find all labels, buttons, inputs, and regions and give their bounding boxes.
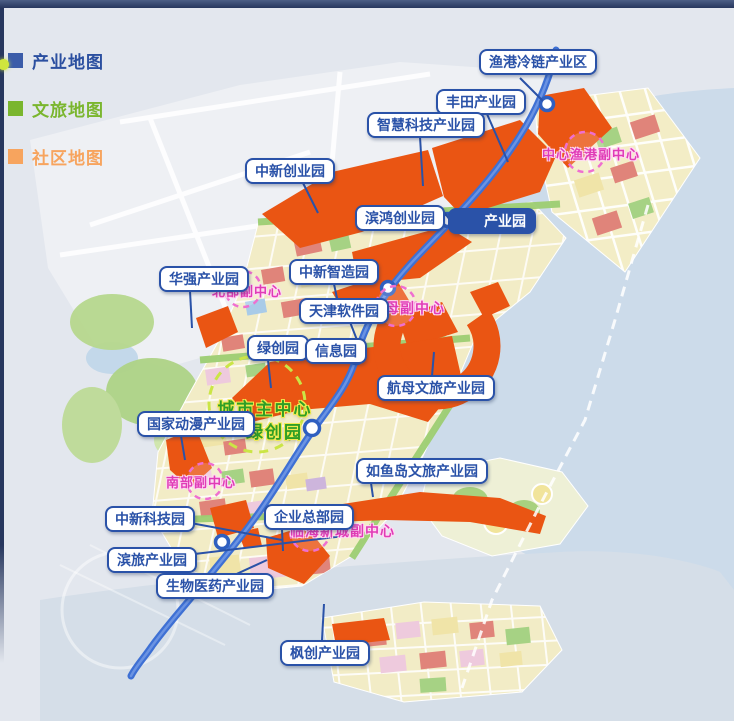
legend-item-label: 产业地图 bbox=[32, 48, 104, 73]
industry-map-page: 产业地图 文旅地图 社区地图 渔港冷链产业区 丰田产业园 智慧科技产业园 中新创… bbox=[0, 0, 734, 721]
top-accent-bar bbox=[0, 0, 734, 8]
legend-item-label: 文旅地图 bbox=[32, 96, 104, 121]
park-label-binlv[interactable]: 滨旅产业园 bbox=[107, 547, 197, 573]
park-label-shengwu-yiyao[interactable]: 生物医药产业园 bbox=[156, 573, 274, 599]
park-label-lvchuang[interactable]: 绿创园 bbox=[247, 335, 309, 361]
legend-item-industry[interactable]: 产业地图 bbox=[8, 48, 104, 73]
park-label-xinxi[interactable]: 信息园 bbox=[305, 338, 367, 364]
community-swatch bbox=[8, 149, 23, 164]
subcenter-zhongxin-yugang: 中心渔港副中心 bbox=[542, 144, 640, 163]
park-label-guojia-dongman[interactable]: 国家动漫产业园 bbox=[137, 411, 255, 437]
park-label-huaqiang[interactable]: 华强产业园 bbox=[159, 266, 249, 292]
park-label-zhongxin-zhizao[interactable]: 中新智造园 bbox=[289, 259, 379, 285]
legend-item-label: 社区地图 bbox=[32, 144, 104, 169]
park-label-yugang-lengliang[interactable]: 渔港冷链产业区 bbox=[479, 49, 597, 75]
park-label-chanyeyuan-partial[interactable]: 产业园 bbox=[448, 208, 536, 234]
legend-item-culture[interactable]: 文旅地图 bbox=[8, 96, 104, 121]
map-canvas bbox=[0, 0, 734, 721]
legend-item-community[interactable]: 社区地图 bbox=[8, 144, 104, 169]
park-label-fengchuang[interactable]: 枫创产业园 bbox=[280, 640, 370, 666]
park-label-hangmu-wenlv[interactable]: 航母文旅产业园 bbox=[377, 375, 495, 401]
park-label-zhongxin-chuangye[interactable]: 中新创业园 bbox=[245, 158, 335, 184]
park-label-qiye-zongbu[interactable]: 企业总部园 bbox=[264, 504, 354, 530]
culture-swatch bbox=[8, 101, 23, 116]
park-label-binhong-chuangye[interactable]: 滨鸿创业园 bbox=[355, 205, 445, 231]
industry-swatch bbox=[8, 53, 23, 68]
park-label-ruyudao-wenlv[interactable]: 如鱼岛文旅产业园 bbox=[356, 458, 488, 484]
legend: 产业地图 文旅地图 社区地图 bbox=[0, 48, 104, 192]
subcenter-nanbu: 南部副中心 bbox=[166, 472, 236, 491]
park-label-zhongxin-keji[interactable]: 中新科技园 bbox=[105, 506, 195, 532]
park-label-zhihui-keji[interactable]: 智慧科技产业园 bbox=[367, 112, 485, 138]
park-label-tianjin-software[interactable]: 天津软件园 bbox=[299, 298, 389, 324]
